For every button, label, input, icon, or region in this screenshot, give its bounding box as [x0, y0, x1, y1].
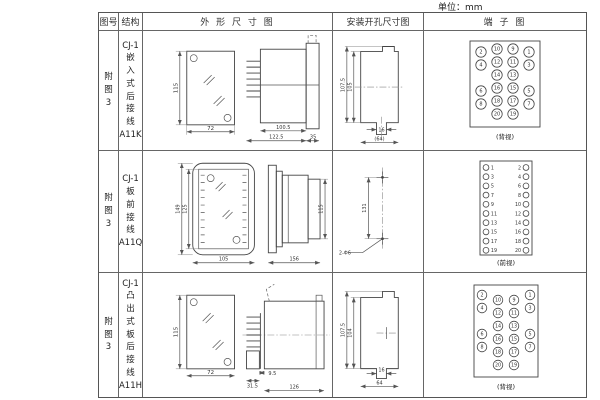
terminal-number: 14 [515, 220, 521, 226]
dim-plate-width: 105 [219, 256, 228, 262]
terminal-number: 3 [491, 174, 494, 180]
panel-clamp [308, 35, 316, 43]
terminal-circle [523, 238, 529, 244]
dim-cutout-width: (64) [374, 136, 384, 142]
dimension-table: 图号 结构 外 形 尺 寸 图 安装开孔尺寸图 端 子 图 附 图 3 CJ-1… [98, 12, 587, 398]
terminal-circle [483, 192, 489, 198]
dim-cutout-outer-height: 107.5 [340, 323, 346, 337]
terminal-number: 13 [511, 324, 517, 330]
dim-side-height: 115 [319, 204, 325, 213]
terminal-pins [246, 61, 260, 97]
terminal-number: 20 [495, 363, 501, 369]
terminal-number: 8 [480, 345, 483, 351]
hole-mark [377, 232, 389, 244]
structure-row1: CJ-1 嵌 入 式 后 接 线 A11K [119, 31, 143, 151]
mount-svg-row1: 107.5 105 16 (64) [333, 31, 423, 151]
terminal-drawing-row2: 1234567891011121314151617181920 (前视) [424, 151, 586, 273]
terminal-number: 10 [495, 298, 501, 304]
figure-number-row2: 附 图 3 [99, 151, 119, 273]
dim-side-length: 156 [289, 256, 298, 262]
terminal-drawing-row3: 2109141211314136161558181772019 (背视) [424, 273, 586, 397]
header-terminal-diagram: 端 子 图 [424, 13, 586, 31]
header-figure-number: 图号 [99, 13, 119, 31]
dim-cutout-outer-height: 107.5 [340, 77, 346, 91]
terminal-number: 8 [479, 101, 482, 107]
terminal-base [246, 351, 259, 369]
terminal-number: 18 [494, 98, 500, 104]
dim-front-height: 115 [173, 327, 179, 337]
outline-drawing-row1: 115 72 100.5 122.5 35 [143, 31, 333, 151]
terminal-circle [483, 238, 489, 244]
terminal-number: 9 [491, 202, 494, 208]
terminal-number: 6 [518, 183, 521, 189]
outline-svg-row1: 115 72 100.5 122.5 35 [143, 31, 332, 151]
terminal-circle [483, 229, 489, 235]
terminal-grid: 1234567891011121314151617181920 [483, 164, 529, 254]
screw-hole-icon [190, 54, 197, 61]
terminal-number: 19 [511, 363, 517, 369]
terminal-caption: (前视) [497, 258, 515, 267]
dim-cutout-inner-height: 105 [347, 82, 353, 91]
figure-number-row1: 附 图 3 [99, 31, 119, 151]
terminal-pins [246, 317, 260, 347]
terminal-circle [523, 201, 529, 207]
terminal-circle [483, 201, 489, 207]
terminal-number: 20 [494, 111, 500, 117]
terminal-number: 2 [479, 49, 482, 55]
dim-plate-height: 149 [175, 204, 181, 213]
dim-hole-spacing: 131 [362, 203, 368, 212]
terminal-number: 16 [495, 337, 501, 343]
hatch-marks [216, 182, 233, 219]
terminal-block-outline [480, 161, 532, 255]
terminal-number: 4 [479, 62, 482, 68]
terminal-number: 1 [491, 165, 494, 171]
terminal-circle [523, 183, 529, 189]
terminal-grid: 2109141211314136161558181772019 [477, 290, 535, 370]
hole-spec-label: 2-Φ6 [339, 250, 351, 256]
terminal-drawing-row1: 2109141211314136161558181772019 (背视) [424, 31, 586, 151]
terminal-circle [483, 219, 489, 225]
dim-cutout-width: 64 [376, 380, 382, 386]
terminal-number: 7 [491, 192, 494, 198]
dim-front-width: 72 [207, 125, 214, 131]
relay-front-view [187, 295, 235, 369]
terminal-number: 4 [480, 306, 483, 312]
dim-flange-depth: 35 [310, 134, 316, 140]
terminal-circle [483, 173, 489, 179]
relay-front-inner [199, 169, 249, 249]
terminal-number: 10 [515, 202, 521, 208]
terminal-circle [523, 164, 529, 170]
relay-front-flange [306, 43, 319, 129]
dim-body-depth: 100.5 [276, 124, 290, 130]
terminal-number: 15 [510, 85, 516, 91]
dim-notch-width: 16 [378, 368, 384, 374]
terminal-number: 11 [491, 211, 497, 217]
side-body [282, 175, 308, 243]
terminal-circle [523, 210, 529, 216]
terminal-number: 9 [512, 298, 515, 304]
outline-svg-row2: 149 125 105 156 115 [143, 151, 332, 273]
terminal-number: 17 [510, 98, 516, 104]
terminal-circle [523, 173, 529, 179]
mount-svg-row3: 107.5 104 16 64 [333, 273, 423, 397]
flange-tab [316, 295, 322, 301]
relay-front-view [187, 51, 235, 125]
terminal-number: 16 [515, 229, 521, 235]
terminal-number: 13 [510, 72, 516, 78]
terminal-dot-columns [201, 175, 247, 242]
terminal-number: 8 [518, 192, 521, 198]
terminal-number: 12 [495, 311, 501, 317]
terminal-number: 6 [480, 332, 483, 338]
dim-body-depth: 126 [289, 385, 298, 391]
outline-svg-row3: 115 72 9.5 31.5 126 [143, 273, 332, 397]
terminal-number: 5 [491, 183, 494, 189]
terminal-number: 2 [518, 165, 521, 171]
screw-hole-icon [190, 299, 197, 306]
terminal-number: 3 [527, 62, 530, 68]
terminal-number: 4 [518, 174, 521, 180]
terminal-caption: (背视) [496, 132, 514, 141]
terminal-number: 14 [495, 324, 501, 330]
terminal-circle [483, 210, 489, 216]
mount-drawing-row2: 131 2-Φ6 [333, 151, 424, 273]
structure-row3: CJ-1 凸 出 式 板 后 接 线 A11H [119, 273, 143, 397]
terminal-number: 1 [528, 293, 531, 299]
terminal-block-outline [474, 285, 538, 377]
terminal-circle [523, 219, 529, 225]
terminal-number: 17 [511, 350, 517, 356]
terminal-number: 13 [491, 220, 497, 226]
terminal-number: 11 [510, 59, 516, 65]
outline-drawing-row3: 115 72 9.5 31.5 126 [143, 273, 333, 397]
terminal-svg-row3: 2109141211314136161558181772019 (背视) [424, 273, 586, 397]
terminal-grid: 2109141211314136161558181772019 [476, 43, 534, 118]
dim-overall-depth: 122.5 [269, 134, 283, 140]
terminal-caption: (背视) [497, 382, 515, 391]
terminal-number: 16 [494, 85, 500, 91]
dim-gap: 9.5 [268, 371, 276, 377]
terminal-number: 17 [491, 238, 497, 244]
screw-hole-icon [207, 174, 214, 181]
terminal-number: 18 [515, 238, 521, 244]
outline-drawing-row2: 149 125 105 156 115 [143, 151, 333, 273]
hatch-marks [203, 313, 224, 350]
terminal-number: 12 [515, 211, 521, 217]
terminal-number: 20 [515, 248, 521, 254]
terminal-circle [483, 247, 489, 253]
screw-hole-icon [233, 236, 240, 243]
mount-drawing-row1: 107.5 105 16 (64) [333, 31, 424, 151]
relay-front-plate [193, 163, 255, 255]
terminal-circle [483, 183, 489, 189]
terminal-number: 3 [528, 306, 531, 312]
terminal-number: 7 [528, 345, 531, 351]
terminal-number: 7 [527, 101, 530, 107]
terminal-number: 15 [491, 229, 497, 235]
header-structure: 结构 [119, 13, 143, 31]
terminal-number: 15 [511, 337, 517, 343]
terminal-number: 6 [479, 88, 482, 94]
hook-mark [266, 284, 274, 301]
terminal-number: 10 [494, 46, 500, 52]
side-step [276, 171, 282, 247]
hole-mark [377, 171, 389, 183]
mount-drawing-row3: 107.5 104 16 64 [333, 273, 424, 397]
dim-front-width: 72 [207, 370, 214, 376]
terminal-number: 11 [511, 311, 517, 317]
terminal-number: 5 [527, 88, 530, 94]
dim-base-depth: 31.5 [247, 384, 258, 390]
terminal-number: 9 [511, 46, 514, 52]
terminal-number: 12 [494, 59, 500, 65]
side-flange [268, 165, 276, 253]
dim-front-height: 115 [173, 82, 179, 92]
dim-inner-height: 125 [182, 204, 188, 213]
terminal-circle [523, 192, 529, 198]
terminal-number: 1 [527, 49, 530, 55]
dim-cutout-inner-height: 104 [347, 328, 353, 337]
screw-hole-icon [224, 114, 231, 121]
mount-svg-row2: 131 2-Φ6 [333, 151, 423, 273]
header-mounting-hole-dimensions: 安装开孔尺寸图 [333, 13, 424, 31]
terminal-circle [523, 247, 529, 253]
header-outline-dimensions: 外 形 尺 寸 图 [143, 13, 333, 31]
figure-number-row3: 附 图 3 [99, 273, 119, 397]
terminal-circle [523, 229, 529, 235]
cutout-outline [361, 46, 399, 134]
hatch-marks [204, 75, 225, 106]
terminal-number: 18 [495, 350, 501, 356]
relay-side-body [260, 49, 306, 123]
terminal-circle [483, 164, 489, 170]
terminal-number: 2 [480, 293, 483, 299]
terminal-svg-row2: 1234567891011121314151617181920 (前视) [424, 151, 586, 273]
structure-row2: CJ-1 板 前 接 线 A11Q [119, 151, 143, 273]
terminal-number: 5 [528, 332, 531, 338]
terminal-number: 14 [494, 72, 500, 78]
terminal-number: 19 [510, 111, 516, 117]
terminal-svg-row1: 2109141211314136161558181772019 (背视) [424, 31, 586, 151]
screw-hole-icon [224, 358, 231, 365]
dim-notch-width: 16 [378, 127, 384, 133]
terminal-number: 19 [491, 248, 497, 254]
cutout-outline [361, 291, 399, 378]
